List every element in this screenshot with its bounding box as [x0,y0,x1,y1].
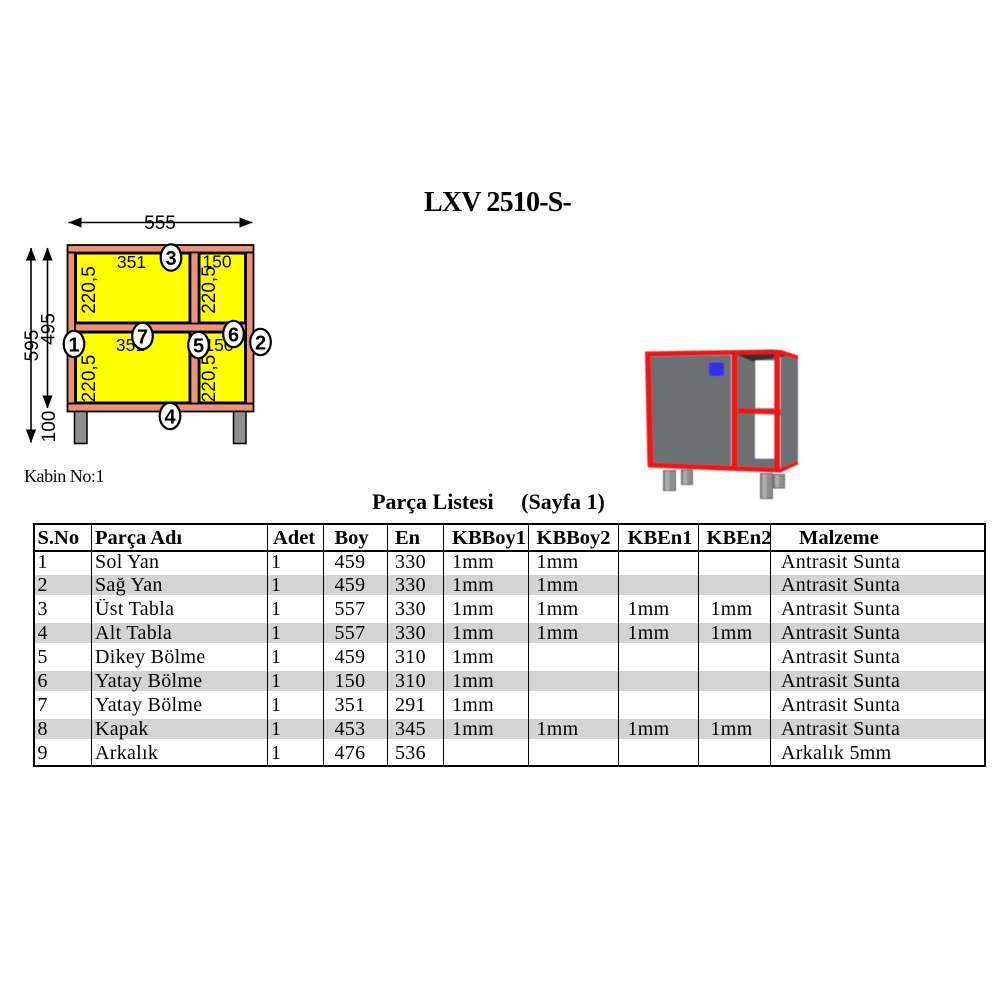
svg-text:7: 7 [137,326,148,348]
svg-text:100: 100 [39,411,60,443]
svg-text:220,5: 220,5 [79,355,100,403]
svg-text:6: 6 [228,324,239,346]
svg-text:495: 495 [39,313,60,345]
svg-text:4: 4 [164,406,176,428]
svg-text:351: 351 [117,252,146,272]
svg-text:220,5: 220,5 [199,266,220,314]
svg-text:220,5: 220,5 [79,266,100,314]
svg-text:1: 1 [68,334,79,356]
svg-text:555: 555 [144,213,176,234]
svg-text:2: 2 [255,332,266,354]
svg-text:220,5: 220,5 [199,355,220,403]
svg-text:5: 5 [193,335,204,357]
svg-text:3: 3 [165,248,176,270]
